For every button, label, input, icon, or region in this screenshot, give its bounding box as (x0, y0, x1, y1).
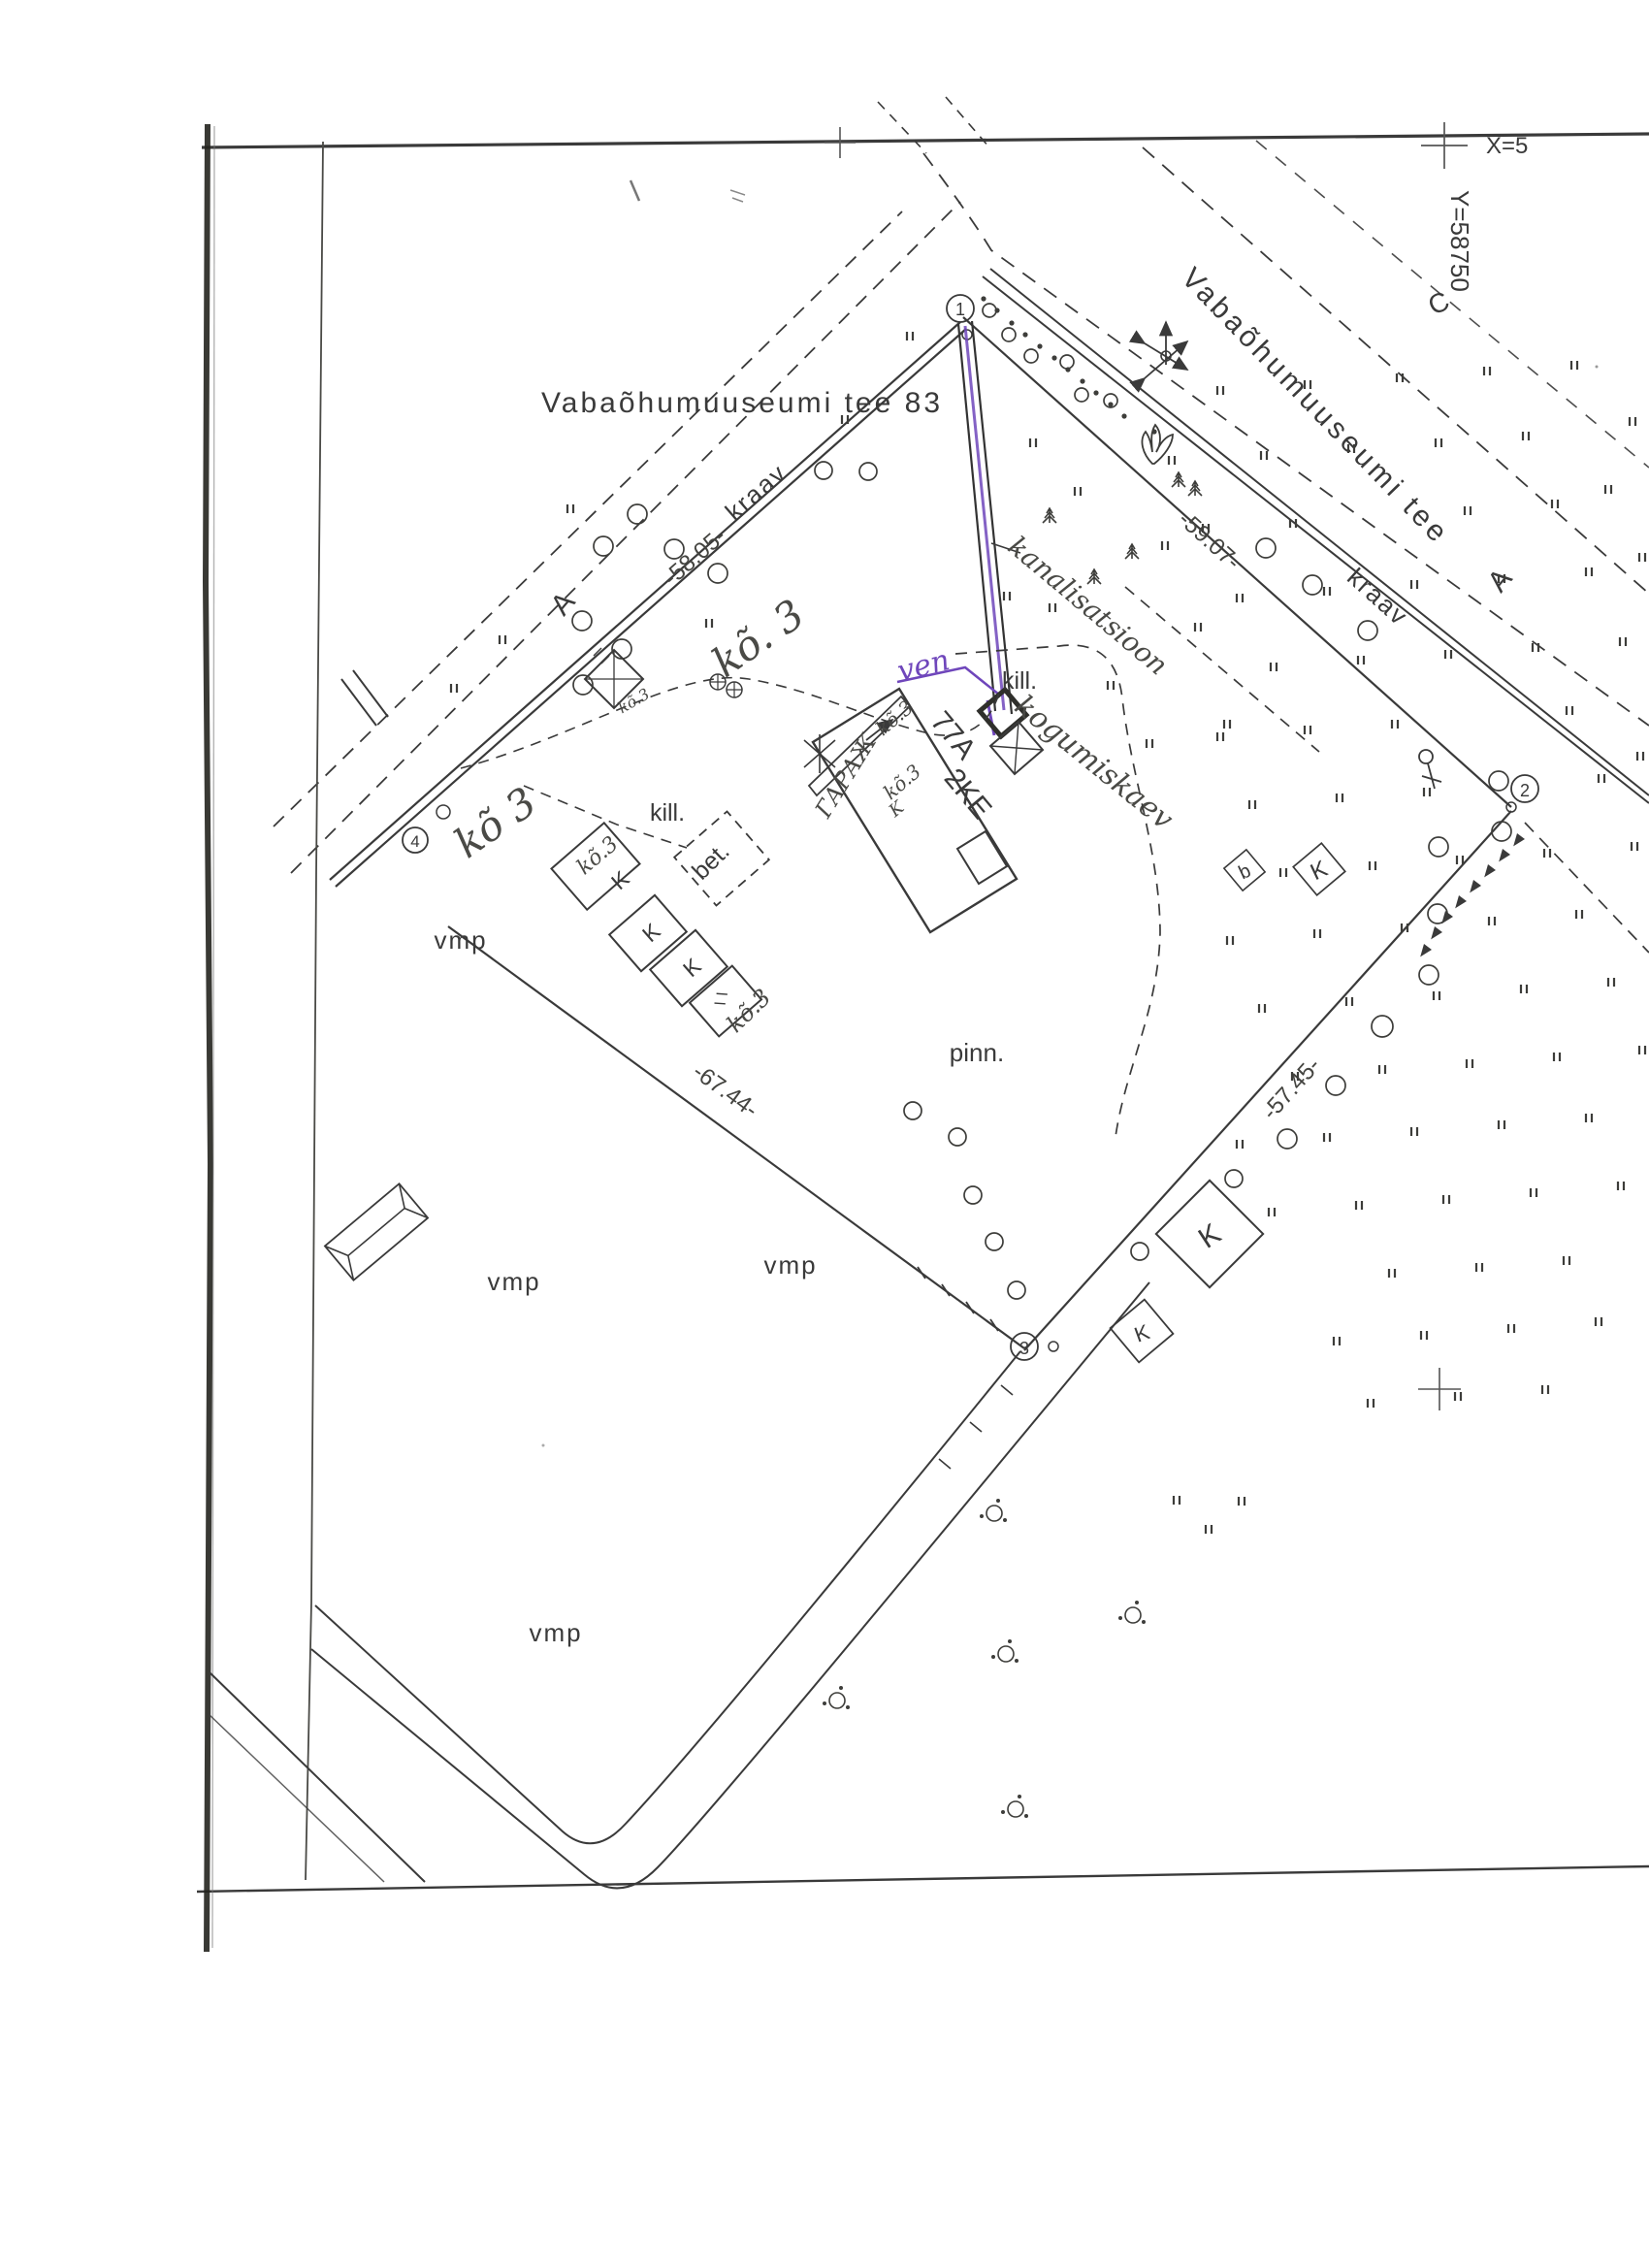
crossed-arrows-icon (1145, 322, 1187, 378)
pen-mark (630, 180, 639, 201)
culvert-crossing (341, 670, 388, 726)
handwritten-note: kõ.3 (722, 984, 776, 1038)
section-letter-a-east: A (1481, 563, 1518, 599)
b-marker-label: b (1236, 860, 1254, 885)
sheet-bottom-edge (197, 1866, 1649, 1892)
handwritten-note-nw: kõ. 3 (703, 590, 813, 686)
corner-1-label: 1 (955, 300, 965, 319)
registration-cross-bottom-right (1418, 1368, 1461, 1410)
surface-vmp-2: vmp (487, 1267, 540, 1296)
handwritten-note-k: K (885, 796, 910, 822)
section-letter-a-west: A (544, 586, 581, 622)
surface-vmp-1: vmp (434, 925, 487, 955)
surface-pinn: pinn. (950, 1038, 1004, 1067)
prism-building (325, 1183, 428, 1280)
pen-mark (730, 190, 745, 202)
surface-vmp-3: vmp (763, 1250, 817, 1280)
surface-bet: bet. (687, 837, 734, 885)
k-marker-small-label: K (1131, 1319, 1153, 1347)
surface-kill-1: kill. (650, 799, 685, 826)
street-edge-dashed (1143, 147, 1649, 594)
street-edge-dashed (923, 153, 1649, 726)
road-edge-inner (315, 1351, 1020, 1843)
coordinate-label-y: Y=58750 (1445, 190, 1474, 292)
house-number-label: 77A (924, 705, 983, 765)
boundary-se (1024, 811, 1511, 1350)
buildings: 77A 2KE K K K (325, 648, 1043, 1280)
dimension-se: -57.45- (1257, 1053, 1326, 1125)
site-plan-map: X=5 Y=58750 Vabaõhumuuseumi tee 83 Vabaõ… (0, 0, 1649, 2268)
road-hatches (939, 1385, 1013, 1469)
streetlight-icon (1419, 750, 1441, 789)
handwritten-water: ven (894, 643, 954, 689)
dimension-south: -67.44- (688, 1058, 762, 1123)
building-annex (957, 831, 1007, 884)
k-marker-mid-label: K (1307, 856, 1332, 886)
scan-streak (206, 124, 210, 1952)
bushes (823, 1499, 1146, 1818)
surface-vmp-4: vmp (529, 1618, 582, 1647)
corner-2-label: 2 (1520, 781, 1530, 800)
west-boundary-line (306, 142, 323, 1880)
survey-x-mark (804, 734, 835, 773)
scanned-site-plan: X=5 Y=58750 Vabaõhumuuseumi tee 83 Vabaõ… (0, 0, 1649, 2268)
k-marker-large-label: K (1193, 1217, 1227, 1255)
handwritten-note: kõ.3 (879, 760, 925, 804)
corner-3-label: 3 (1019, 1339, 1029, 1358)
street-name-label: Vabaõhumuuseumi tee (1175, 262, 1455, 551)
surface-kill-2: kill. (1002, 667, 1037, 695)
roads-south (208, 1282, 1149, 1888)
dot-row (981, 296, 1156, 434)
house-type-label: 2KE (938, 762, 998, 826)
road-edge-outer (311, 1282, 1149, 1888)
ditch-label-ne: kraav (1342, 562, 1414, 632)
handwritten-note: kõ.3 (615, 685, 653, 718)
coordinate-label-x: X=5 (1486, 133, 1528, 159)
handwritten-well: kogumiskaev (1008, 689, 1180, 836)
ditch-line-ne (983, 269, 1649, 803)
shed-letter: K (637, 918, 665, 947)
registration-cross-top-right (1421, 122, 1468, 169)
road-sw-exit (210, 1672, 425, 1882)
registration-cross-top-center (824, 127, 856, 158)
corner-marker-4: 4 (403, 805, 450, 853)
boundary-dashed-exit (1525, 823, 1649, 953)
street-edge-dashed (274, 211, 902, 826)
handwritten-note-w: kõ 3 (445, 778, 544, 867)
corner-4-label: 4 (410, 832, 419, 851)
dimension-ne: -59.07- (1173, 506, 1245, 575)
vegetation (451, 296, 1645, 1818)
street-junction-dashes (878, 97, 989, 153)
shed-letter: K (678, 953, 706, 982)
